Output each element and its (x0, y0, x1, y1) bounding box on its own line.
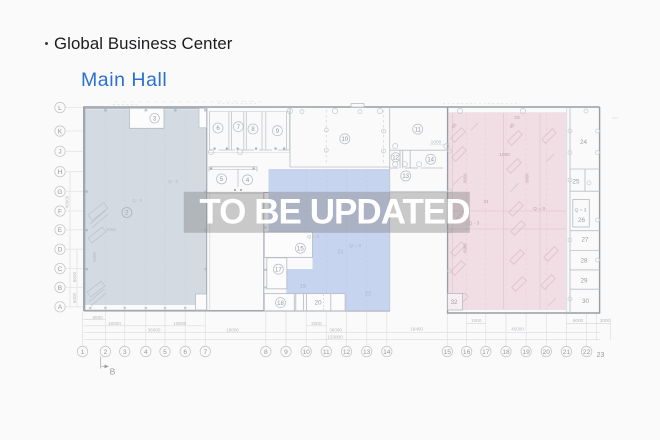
svg-text:15: 15 (297, 247, 304, 253)
svg-text:G: G (57, 189, 62, 196)
svg-text:15: 15 (444, 349, 452, 356)
svg-text:3000: 3000 (600, 318, 611, 323)
svg-text:Q = 3: Q = 3 (575, 208, 587, 214)
svg-text:3: 3 (123, 349, 127, 356)
svg-text:F: F (58, 208, 62, 215)
svg-text:6000: 6000 (92, 315, 103, 320)
svg-text:19: 19 (300, 284, 306, 290)
svg-text:6: 6 (183, 349, 187, 356)
svg-text:8: 8 (264, 349, 268, 356)
svg-text:22: 22 (365, 291, 371, 297)
svg-text:45000: 45000 (511, 327, 524, 332)
svg-text:2: 2 (104, 349, 108, 356)
svg-text:L: L (58, 105, 62, 112)
svg-text:5: 5 (220, 177, 224, 183)
svg-text:1000: 1000 (471, 318, 482, 323)
svg-text:4: 4 (144, 349, 148, 356)
svg-text:Q = 3: Q = 3 (533, 206, 545, 212)
svg-text:17: 17 (275, 267, 282, 273)
svg-text:1: 1 (81, 349, 85, 356)
svg-text:8: 8 (251, 127, 255, 133)
svg-text:24: 24 (580, 139, 588, 146)
svg-text:11: 11 (415, 127, 422, 133)
svg-text:18000: 18000 (173, 321, 186, 326)
svg-text:Q - 3: Q - 3 (132, 198, 142, 203)
svg-text:7: 7 (203, 349, 207, 356)
svg-text:4: 4 (246, 178, 250, 184)
svg-text:Q = 3: Q = 3 (349, 243, 361, 249)
svg-text:2090: 2090 (106, 227, 117, 232)
svg-text:J: J (58, 149, 61, 156)
svg-text:25: 25 (572, 178, 580, 185)
svg-text:B: B (58, 285, 63, 292)
svg-text:28: 28 (580, 257, 588, 264)
svg-text:6000: 6000 (573, 318, 584, 323)
svg-text:E: E (58, 227, 63, 234)
svg-text:Q = 3: Q = 3 (307, 234, 319, 240)
svg-text:14: 14 (427, 158, 434, 164)
svg-text:K: K (58, 128, 63, 135)
svg-text:20: 20 (314, 300, 322, 307)
svg-text:14: 14 (383, 349, 391, 356)
svg-text:Q - 3: Q - 3 (469, 221, 480, 227)
svg-text:19: 19 (522, 349, 530, 356)
svg-text:36000: 36000 (148, 328, 161, 333)
svg-text:5: 5 (163, 349, 167, 356)
svg-text:36000: 36000 (329, 328, 342, 333)
svg-text:40000: 40000 (65, 195, 70, 208)
svg-text:B: B (110, 367, 116, 377)
svg-text:C: C (58, 266, 63, 273)
svg-text:6000: 6000 (72, 292, 77, 303)
svg-text:Q - 3: Q - 3 (168, 179, 178, 184)
svg-text:18000: 18000 (108, 321, 121, 326)
svg-text:A: A (58, 304, 63, 311)
svg-text:12: 12 (343, 349, 351, 356)
svg-text:13: 13 (402, 174, 409, 180)
svg-text:22: 22 (583, 349, 591, 356)
svg-text:5000: 5000 (92, 251, 97, 262)
svg-text:10: 10 (303, 349, 311, 356)
svg-text:18: 18 (277, 301, 284, 307)
svg-text:23: 23 (514, 115, 520, 121)
svg-text:11: 11 (323, 349, 330, 356)
svg-text:23: 23 (597, 352, 605, 359)
svg-text:10: 10 (341, 137, 348, 143)
svg-text:18: 18 (502, 349, 510, 356)
svg-text:1000: 1000 (499, 152, 510, 158)
svg-text:27: 27 (581, 236, 589, 243)
svg-text:16: 16 (463, 349, 471, 356)
svg-text:153800: 153800 (327, 335, 343, 340)
svg-text:31: 31 (483, 199, 489, 205)
svg-text:6: 6 (216, 126, 220, 132)
svg-text:H: H (58, 169, 63, 176)
svg-text:13: 13 (363, 349, 371, 356)
svg-text:9: 9 (284, 349, 288, 356)
svg-text:18000: 18000 (226, 328, 239, 333)
svg-text:9: 9 (276, 129, 280, 135)
svg-text:TO BE UPDATED: TO BE UPDATED (199, 193, 469, 232)
svg-text:12: 12 (392, 156, 399, 162)
svg-text:2: 2 (125, 210, 129, 217)
svg-text:6000: 6000 (525, 173, 530, 183)
svg-text:17: 17 (482, 349, 490, 356)
svg-text:30: 30 (582, 298, 590, 305)
svg-text:D: D (58, 247, 63, 254)
svg-text:32: 32 (451, 300, 458, 306)
svg-text:6000: 6000 (72, 271, 77, 282)
svg-text:7: 7 (237, 125, 241, 131)
svg-text:18400: 18400 (410, 327, 423, 332)
svg-text:21: 21 (563, 349, 571, 356)
svg-text:21: 21 (337, 250, 343, 256)
svg-text:20: 20 (543, 349, 551, 356)
svg-text:29: 29 (580, 277, 588, 284)
svg-text:26: 26 (578, 217, 586, 224)
svg-text:2000: 2000 (311, 321, 322, 326)
